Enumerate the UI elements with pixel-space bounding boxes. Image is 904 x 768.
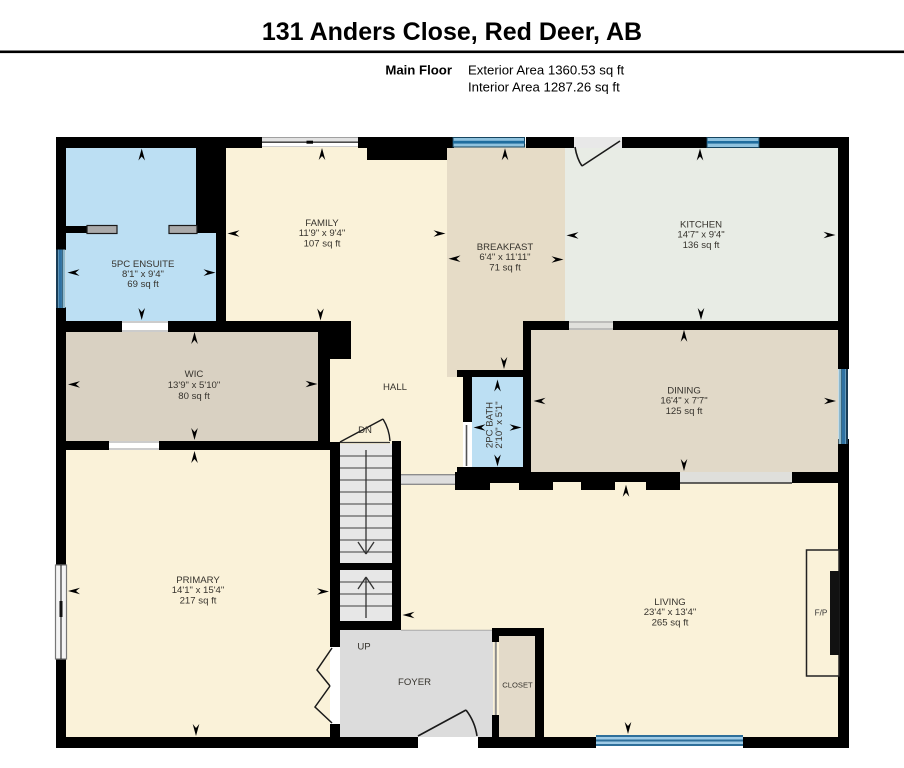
svg-text:2'10" x 5'1": 2'10" x 5'1" (494, 401, 505, 448)
svg-text:136 sq ft: 136 sq ft (683, 240, 720, 251)
svg-text:80 sq ft: 80 sq ft (178, 391, 210, 402)
svg-text:125 sq ft: 125 sq ft (666, 406, 703, 417)
svg-text:107 sq ft: 107 sq ft (304, 238, 341, 249)
svg-text:13'9" x 5'10": 13'9" x 5'10" (168, 380, 221, 391)
svg-text:Exterior Area 1360.53 sq ft: Exterior Area 1360.53 sq ft (468, 63, 624, 78)
svg-text:71 sq ft: 71 sq ft (489, 262, 521, 273)
svg-text:F/P: F/P (815, 609, 828, 618)
svg-text:UP: UP (357, 642, 370, 653)
svg-text:WIC: WIC (185, 369, 204, 380)
svg-text:Main Floor: Main Floor (385, 63, 452, 78)
svg-text:DN: DN (358, 425, 372, 436)
svg-text:217 sq ft: 217 sq ft (180, 595, 217, 606)
svg-text:CLOSET: CLOSET (502, 681, 533, 690)
svg-text:69 sq ft: 69 sq ft (127, 279, 159, 290)
svg-text:131 Anders Close, Red Deer, AB: 131 Anders Close, Red Deer, AB (262, 18, 642, 46)
svg-text:Interior Area 1287.26 sq ft: Interior Area 1287.26 sq ft (468, 80, 620, 95)
svg-text:FOYER: FOYER (398, 677, 431, 688)
svg-text:265 sq ft: 265 sq ft (652, 617, 689, 628)
svg-text:HALL: HALL (383, 382, 408, 393)
